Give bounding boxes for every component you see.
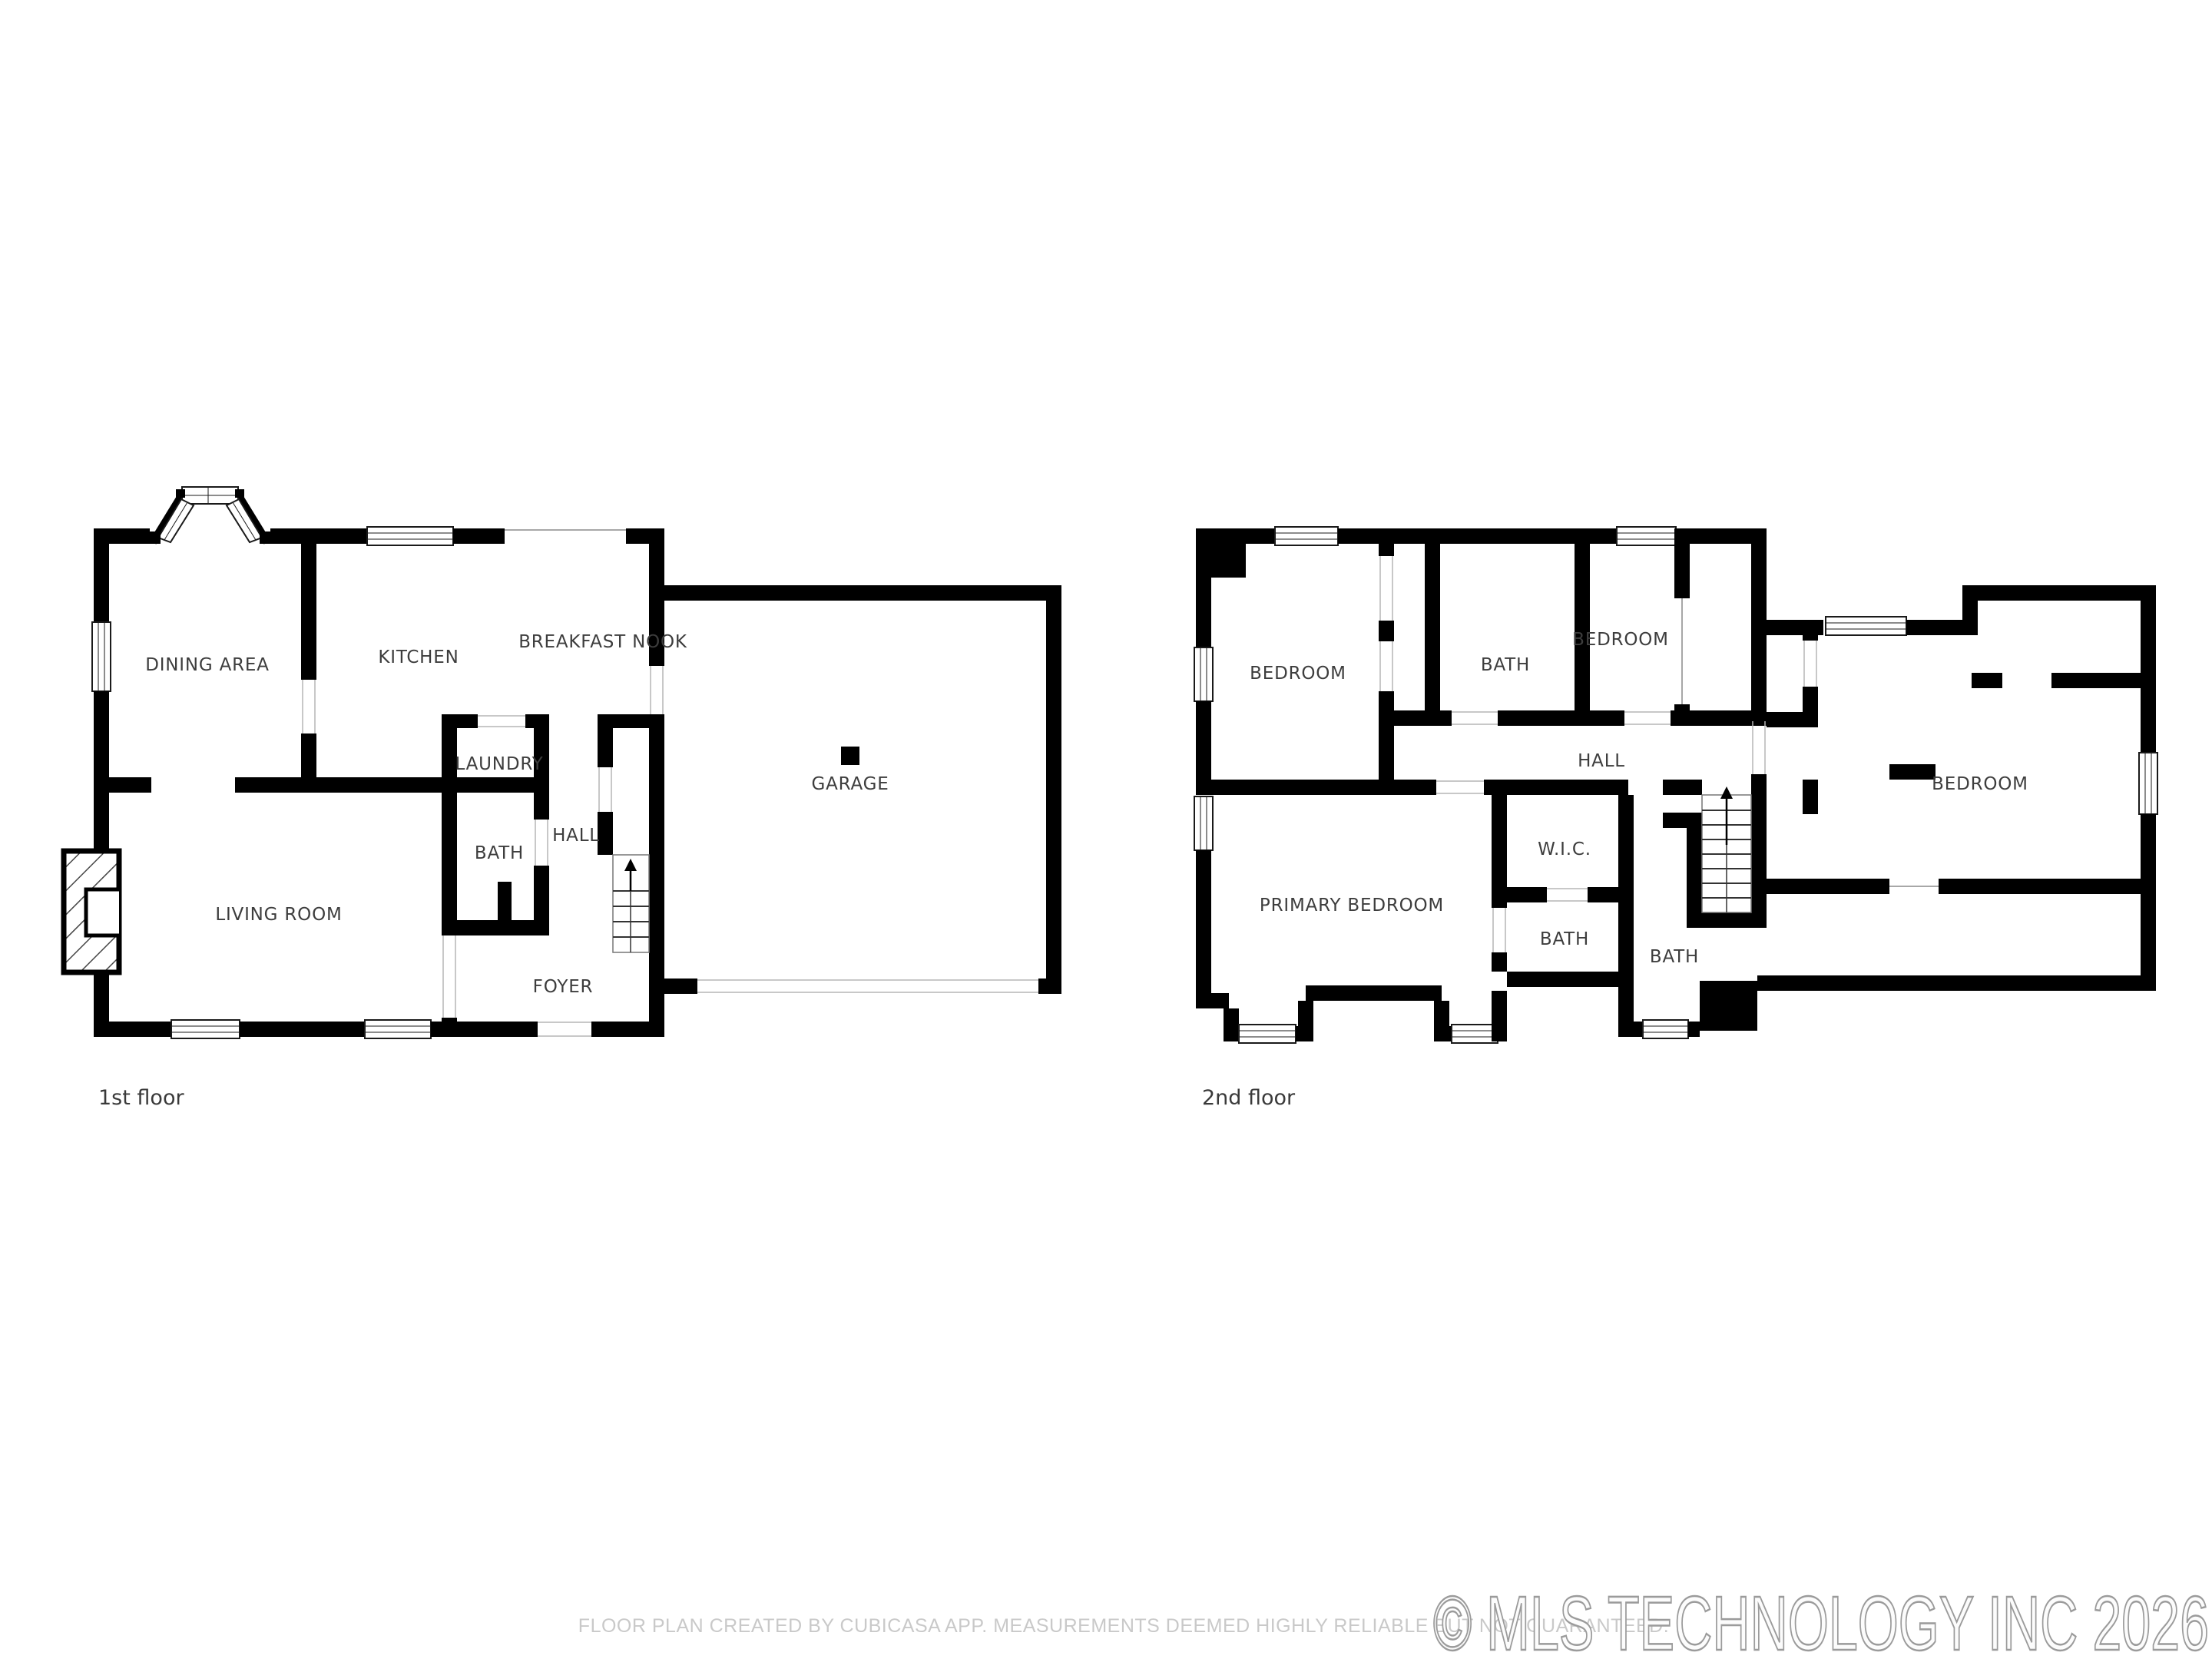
garage-entry-opening: [651, 666, 663, 716]
room-label-breakfast-nook: BREAKFAST NOOK: [518, 632, 687, 652]
bedroom-nw-window: [1275, 527, 1338, 545]
kitchen-window: [367, 527, 453, 545]
bath-door-opening: [535, 820, 548, 866]
stair-hall-opening: [599, 767, 611, 812]
room-label-hall-2: HALL: [1578, 751, 1625, 771]
room-label-hall-1: HALL: [552, 826, 600, 846]
room-label-garage: GARAGE: [811, 774, 889, 794]
hall-landing-opening: [1753, 721, 1765, 774]
floor-label-1st: 1st floor: [98, 1086, 184, 1110]
primary-bump-window-left: [1239, 1025, 1296, 1043]
primary-bump-window-right: [1452, 1025, 1498, 1043]
room-label-bath-1: BATH: [475, 843, 524, 863]
room-label-bedroom-nw: BEDROOM: [1250, 664, 1346, 684]
floor-plan-canvas: DINING AREA KITCHEN BREAKFAST NOOK LAUND…: [0, 0, 2212, 1659]
garage-post-icon: [841, 747, 859, 765]
room-label-living-room: LIVING ROOM: [215, 905, 342, 925]
corner-chimney-block: [1211, 544, 1246, 578]
bay-window: [150, 487, 270, 544]
bath-partition: [498, 882, 512, 935]
kitchen-door-opening: [303, 680, 315, 733]
mls-watermark: © MLS TECHNOLOGY INC 2026: [1433, 1581, 2209, 1659]
living-window-left: [171, 1020, 240, 1038]
primary-bath-door-opening: [1493, 908, 1505, 952]
first-floor-plan: DINING AREA KITCHEN BREAKFAST NOOK LAUND…: [64, 487, 1061, 1110]
landing-closet-opening: [1804, 641, 1816, 687]
chimney-block: [1700, 981, 1757, 1031]
room-label-bedroom-e: BEDROOM: [1932, 774, 2028, 794]
foyer-living-opening: [443, 935, 455, 1018]
dining-window: [92, 622, 111, 691]
room-label-wic: W.I.C.: [1538, 839, 1591, 859]
bedroom-e-window: [2139, 753, 2157, 814]
fireplace: [64, 851, 119, 972]
bath-mid-window: [1643, 1020, 1688, 1038]
floor-label-2nd: 2nd floor: [1202, 1086, 1296, 1110]
primary-side-window: [1194, 796, 1213, 850]
bedroom-n-window: [1617, 527, 1676, 545]
living-window-right: [365, 1020, 431, 1038]
bedroom-n-door-opening: [1624, 712, 1671, 724]
wic-door-opening: [1547, 889, 1588, 901]
closet-opening-2: [1380, 641, 1392, 691]
room-label-bath-top: BATH: [1481, 655, 1530, 675]
second-floor-plan: BEDROOM BATH BEDROOM HALL W.I.C. PRIMARY…: [1194, 527, 2157, 1110]
stairs-first-floor: [613, 855, 649, 952]
room-label-bath-mid: BATH: [1650, 947, 1699, 967]
bedroom-nw-side-window: [1194, 647, 1213, 701]
room-label-dining-area: DINING AREA: [145, 655, 270, 675]
connector-window: [1826, 617, 1906, 635]
primary-bedroom-bumpouts: [1196, 985, 1507, 1043]
room-label-primary-bedroom: PRIMARY BEDROOM: [1260, 896, 1444, 916]
laundry-door-opening: [478, 716, 525, 727]
garage-door-opening: [697, 980, 1038, 992]
stairs-up-arrow-2: [1720, 786, 1733, 799]
room-label-laundry: LAUNDRY: [455, 754, 544, 774]
front-door-opening: [538, 1022, 591, 1036]
room-label-kitchen: KITCHEN: [378, 647, 459, 667]
room-label-foyer: FOYER: [533, 977, 594, 997]
bath-top-door-opening: [1452, 712, 1498, 724]
room-label-bath-left: BATH: [1540, 929, 1589, 949]
room-label-bedroom-n: BEDROOM: [1572, 630, 1669, 650]
primary-door-opening: [1436, 781, 1484, 793]
closet-opening-1: [1380, 556, 1392, 621]
